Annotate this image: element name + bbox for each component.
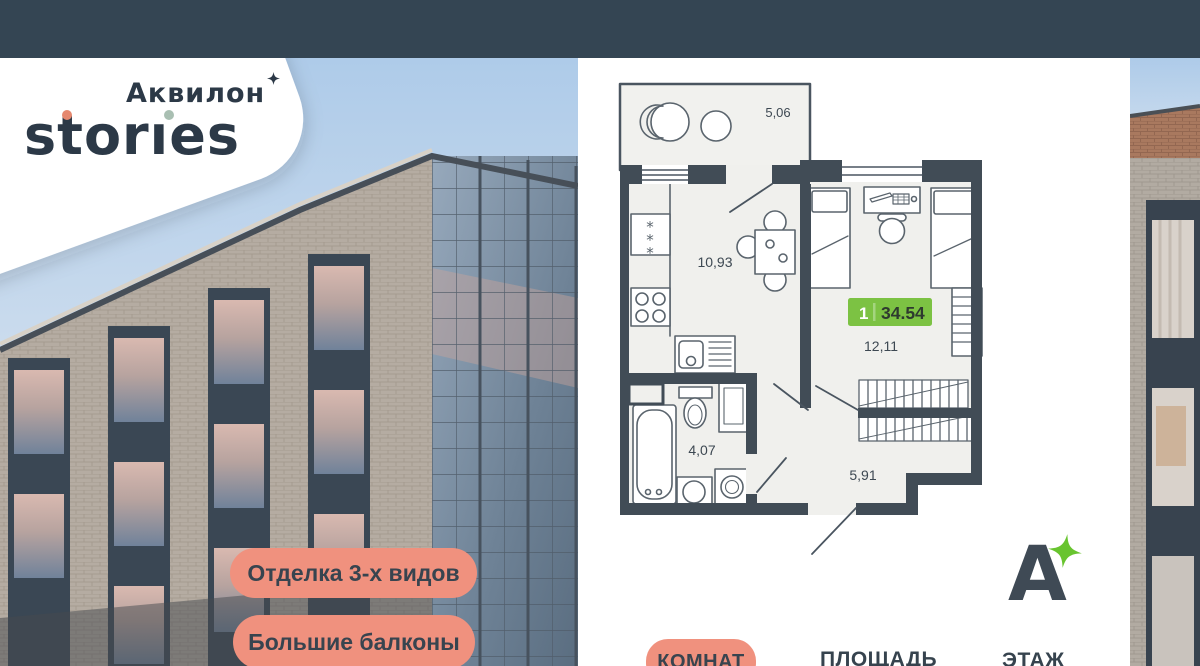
feature-badge-balconies-label: Большие балконы	[248, 629, 460, 656]
feature-badge-finishing: Отделка 3-х видов	[230, 548, 477, 598]
balcony-area: 5,06	[765, 105, 790, 120]
footer-rooms-label: КОМНАТ	[657, 651, 745, 666]
footer-rooms-badge: КОМНАТ	[646, 639, 756, 666]
logo-stories: storıes	[24, 104, 240, 167]
bathroom-area: 4,07	[688, 442, 715, 458]
brand-mark-star-icon	[1048, 534, 1082, 568]
bedroom-area: 12,11	[864, 338, 898, 354]
feature-badge-balconies: Большие балконы	[233, 615, 475, 666]
kitchen-area: 10,93	[697, 254, 732, 270]
logo-dot-sage	[164, 110, 174, 120]
brand-logo: Аквилон storıes	[0, 58, 310, 278]
hallway-area: 5,91	[849, 467, 876, 483]
logo-dot-orange	[62, 110, 72, 120]
total-area: 34.54	[881, 303, 925, 323]
footer-area-label: ПЛОЩАДЬ	[820, 648, 937, 666]
footer-floor-label: ЭТАЖ	[1002, 649, 1065, 666]
top-bar	[0, 0, 1200, 58]
listing-card: Аквилон storıes Отделка 3-х видов Больши…	[0, 0, 1200, 666]
sparkle-icon	[267, 72, 280, 85]
total-area-badge: 1 34.54	[848, 298, 932, 326]
fridge-burners: ***	[646, 218, 654, 262]
feature-badge-finishing-label: Отделка 3-х видов	[247, 560, 459, 587]
rooms-count: 1	[859, 304, 868, 323]
brand-mark: А	[1008, 534, 1098, 618]
building-photo-right	[1130, 58, 1200, 666]
window-column	[1146, 200, 1200, 666]
svg-text:*: *	[646, 244, 654, 262]
